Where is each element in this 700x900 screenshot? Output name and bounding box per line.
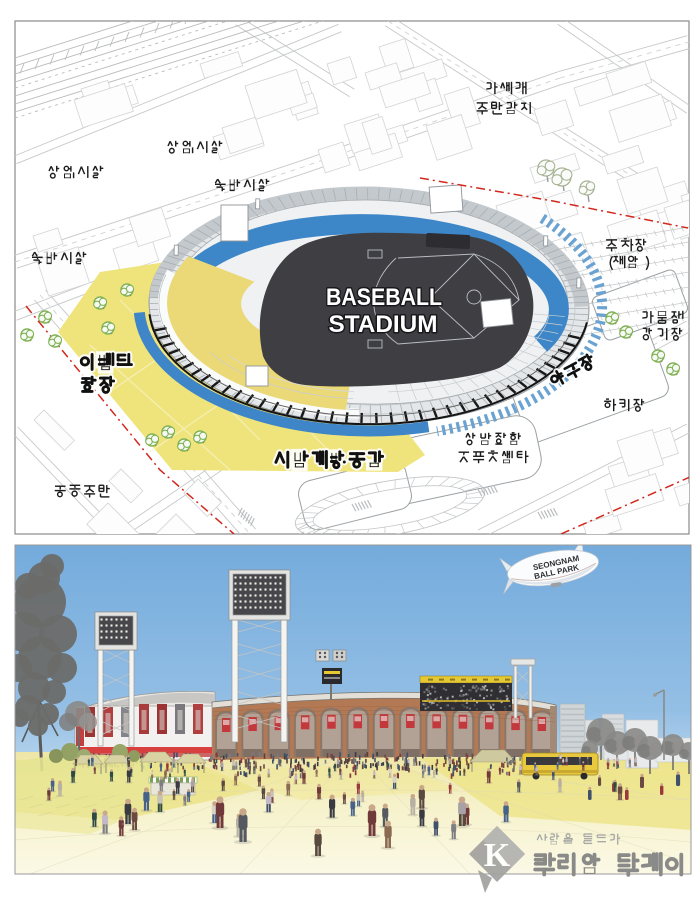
svg-text:STADIUM: STADIUM [329, 311, 438, 338]
svg-text:BASEBALL: BASEBALL [326, 284, 442, 311]
svg-text:K: K [484, 837, 511, 874]
